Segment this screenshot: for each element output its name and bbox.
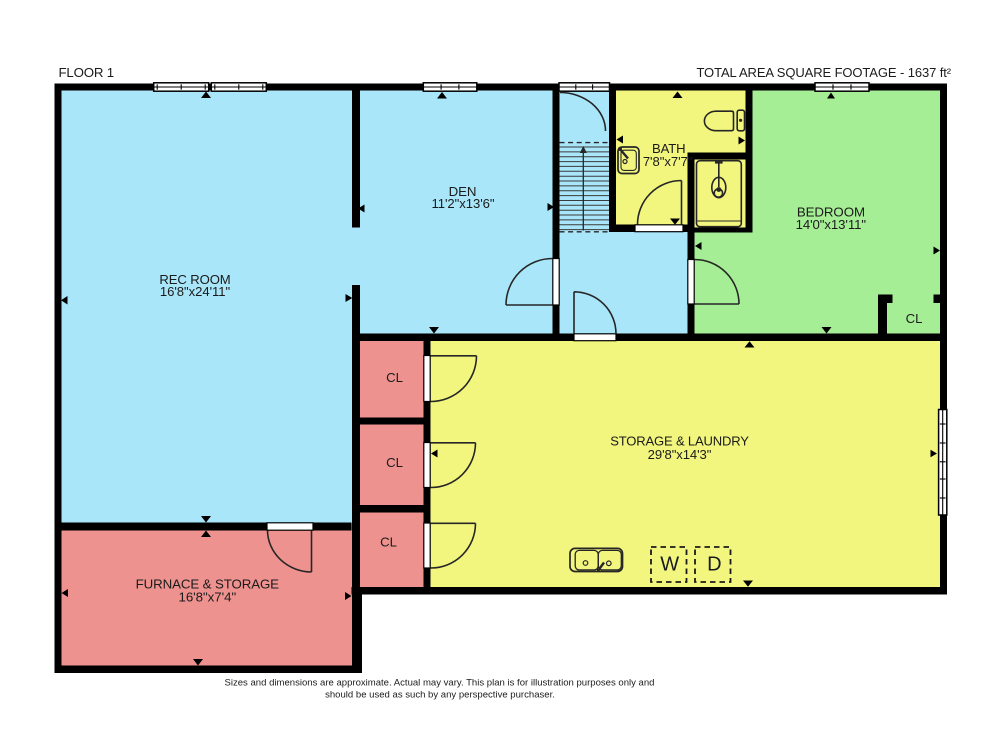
svg-text:CL: CL xyxy=(906,311,923,326)
svg-text:CL: CL xyxy=(386,370,403,385)
svg-text:TOTAL AREA SQUARE FOOTAGE - 16: TOTAL AREA SQUARE FOOTAGE - 1637 ft² xyxy=(696,65,951,80)
svg-text:CL: CL xyxy=(386,455,403,470)
svg-text:W: W xyxy=(660,553,679,575)
svg-text:CL: CL xyxy=(380,534,397,549)
svg-text:D: D xyxy=(707,553,721,575)
svg-text:Sizes and dimensions are appro: Sizes and dimensions are approximate. Ac… xyxy=(224,677,654,688)
svg-text:16'8"x7'4": 16'8"x7'4" xyxy=(178,589,236,604)
svg-text:7'8"x7'7": 7'8"x7'7" xyxy=(643,154,693,169)
svg-text:16'8"x24'11": 16'8"x24'11" xyxy=(160,284,231,299)
svg-text:11'2"x13'6": 11'2"x13'6" xyxy=(431,196,494,211)
svg-text:FLOOR 1: FLOOR 1 xyxy=(59,65,115,80)
svg-text:14'0"x13'11": 14'0"x13'11" xyxy=(796,217,867,232)
svg-text:29'8"x14'3": 29'8"x14'3" xyxy=(648,447,712,462)
svg-text:should be used as such by any: should be used as such by any perspectiv… xyxy=(325,689,555,700)
